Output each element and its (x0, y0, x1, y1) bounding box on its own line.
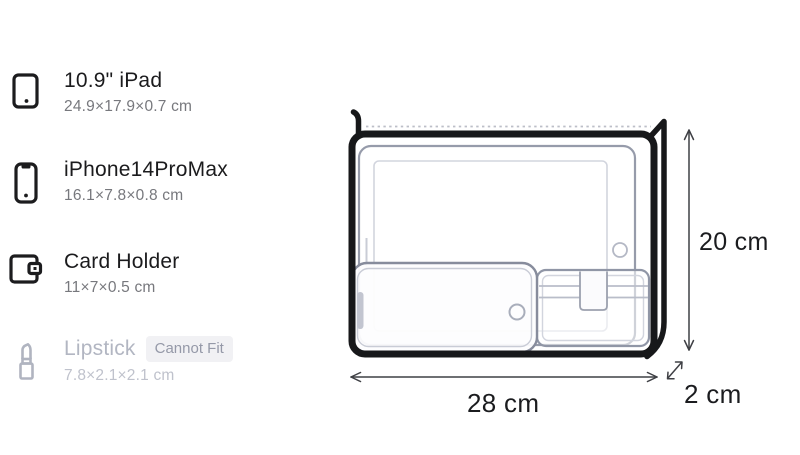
bag-depth-label: 2 cm (684, 379, 742, 410)
iphone-outline (352, 263, 537, 352)
item-dimensions: 7.8×2.1×2.1 cm (64, 367, 233, 385)
item-name: 10.9" iPad (64, 69, 162, 93)
width-arrow (351, 373, 657, 382)
ipad-icon (12, 73, 39, 109)
bag-width-label: 28 cm (467, 388, 539, 419)
bag-back-panel (354, 112, 665, 357)
bag-front-outline (352, 134, 654, 354)
item-name: Lipstick (64, 337, 136, 361)
depth-arrow (668, 362, 683, 379)
item-name: iPhone14ProMax (64, 158, 228, 182)
card-holder-outline (537, 270, 649, 346)
wallet-icon (9, 254, 43, 284)
height-arrow (685, 130, 694, 350)
lipstick-icon (17, 342, 37, 382)
iphone-icon (14, 162, 38, 204)
item-dimensions: 24.9×17.9×0.7 cm (64, 98, 192, 116)
bag-height-label: 20 cm (699, 228, 769, 257)
item-dimensions: 16.1×7.8×0.8 cm (64, 187, 228, 205)
cannot-fit-badge: Cannot Fit (146, 336, 233, 362)
item-name: Card Holder (64, 250, 179, 274)
bag-fit-page: 10.9" iPad 24.9×17.9×0.7 cm iPhone14ProM… (0, 0, 800, 455)
ipad-outline (359, 146, 635, 345)
item-dimensions: 11×7×0.5 cm (64, 279, 179, 297)
